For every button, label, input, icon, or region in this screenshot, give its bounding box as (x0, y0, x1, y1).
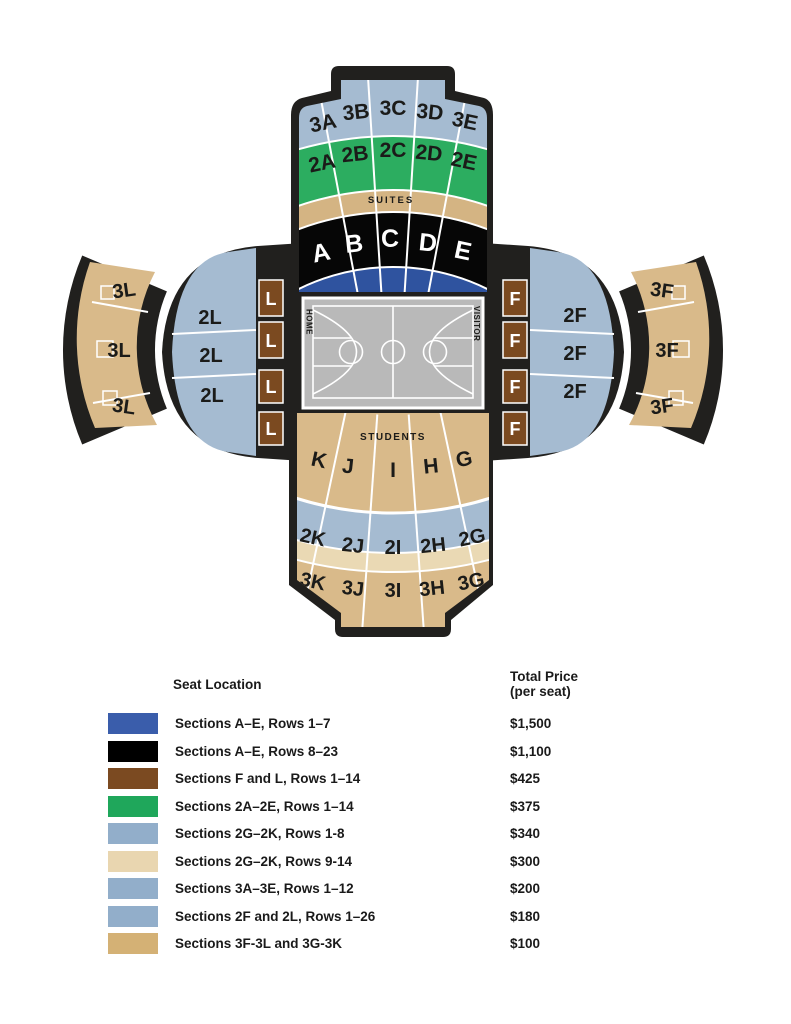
section-2f-label-2: 2F (563, 343, 586, 365)
section-f-label-1: F (510, 289, 521, 309)
section-d-label: D (418, 228, 439, 258)
legend-row: Sections 2G–2K, Rows 9-14 $300 (0, 848, 791, 875)
total-price-header: Total Price (per seat) (510, 669, 578, 699)
legend-swatch (108, 823, 158, 844)
arena-map: 3A 3B 3C 3D 3E 2A 2B 2C 2D 2E SUITES A B… (0, 0, 791, 660)
legend-row-label: Sections 2G–2K, Rows 9-14 (175, 854, 352, 869)
legend-swatch (108, 796, 158, 817)
legend-row-label: Sections 2A–2E, Rows 1–14 (175, 799, 354, 814)
section-3c-label: 3C (380, 97, 407, 120)
section-3f-label-2: 3F (655, 340, 678, 362)
legend-swatch (108, 878, 158, 899)
section-b-label: B (344, 229, 365, 259)
legend-swatch (108, 933, 158, 954)
right-wing: 2F 2F 2F F F F F 3F 3F 3F (503, 248, 709, 456)
legend-row-price: $100 (510, 936, 540, 951)
section-l-label-3: L (266, 377, 277, 397)
legend-row: Sections 2F and 2L, Rows 1–26 $180 (0, 903, 791, 930)
section-2i-label: 2I (385, 537, 402, 559)
section-2f-label-3: 2F (563, 381, 586, 403)
seat-location-header: Seat Location (173, 677, 262, 692)
section-2b-label: 2B (340, 142, 369, 168)
section-3h-label: 3H (418, 577, 446, 602)
visitor-label: VISITOR (472, 306, 481, 341)
legend-swatch (108, 741, 158, 762)
section-2l-label-3: 2L (200, 385, 223, 407)
section-i-label: I (390, 459, 396, 482)
legend-row: Sections 2G–2K, Rows 1-8 $340 (0, 820, 791, 847)
legend-swatch (108, 906, 158, 927)
court: HOME VISITOR (303, 298, 483, 408)
section-3l-label-2: 3L (107, 340, 130, 362)
section-l-label-1: L (266, 289, 277, 309)
legend-row-label: Sections 2F and 2L, Rows 1–26 (175, 909, 375, 924)
section-3l-label-1: 3L (111, 278, 137, 303)
legend-row-price: $375 (510, 799, 540, 814)
legend-row-price: $1,500 (510, 716, 551, 731)
seating-chart-page: 3A 3B 3C 3D 3E 2A 2B 2C 2D 2E SUITES A B… (0, 0, 791, 1024)
section-3l-label-3: 3L (111, 394, 137, 419)
section-l-label-4: L (266, 419, 277, 439)
section-2f-label-1: 2F (563, 305, 586, 327)
legend-swatch (108, 713, 158, 734)
section-3f-label-1: 3F (649, 278, 675, 303)
section-h-label: H (422, 454, 439, 478)
legend-row-price: $425 (510, 771, 540, 786)
students-label: STUDENTS (360, 432, 426, 443)
legend-row-price: $1,100 (510, 744, 551, 759)
legend-swatch (108, 768, 158, 789)
legend-row: Sections F and L, Rows 1–14 $425 (0, 765, 791, 792)
section-2l-label-2: 2L (199, 345, 222, 367)
section-3f-label-3: 3F (649, 394, 675, 419)
left-wing: 2L 2L 2L L L L L 3L 3L 3L (77, 248, 283, 456)
legend-row-label: Sections 3F-3L and 3G-3K (175, 936, 342, 951)
legend-row-label: Sections F and L, Rows 1–14 (175, 771, 360, 786)
legend-row: Sections 2A–2E, Rows 1–14 $375 (0, 793, 791, 820)
total-price-header-line2: (per seat) (510, 684, 578, 699)
section-2h-label: 2H (419, 534, 447, 559)
section-2j-label: 2J (341, 534, 365, 558)
section-2c-label: 2C (380, 139, 407, 162)
legend-row: Sections A–E, Rows 8–23 $1,100 (0, 738, 791, 765)
section-3d-label: 3D (415, 100, 444, 126)
legend-row-label: Sections A–E, Rows 8–23 (175, 744, 338, 759)
section-c-label: C (381, 225, 399, 253)
section-3b-label: 3B (341, 100, 370, 126)
suites-label: SUITES (368, 195, 414, 206)
legend-row: Sections 3F-3L and 3G-3K $100 (0, 930, 791, 957)
section-f-label-4: F (510, 419, 521, 439)
legend-row-price: $200 (510, 881, 540, 896)
legend-row: Sections 3A–3E, Rows 1–12 $200 (0, 875, 791, 902)
section-f-label-3: F (510, 377, 521, 397)
section-3i-label: 3I (385, 580, 402, 602)
section-l-label-2: L (266, 331, 277, 351)
legend-row-label: Sections 3A–3E, Rows 1–12 (175, 881, 354, 896)
legend-row: Sections A–E, Rows 1–7 $1,500 (0, 710, 791, 737)
section-2l-label-1: 2L (198, 307, 221, 329)
legend-swatch (108, 851, 158, 872)
section-f-label-2: F (510, 331, 521, 351)
legend-row-label: Sections 2G–2K, Rows 1-8 (175, 826, 345, 841)
legend-row-price: $340 (510, 826, 540, 841)
section-j-label: J (341, 454, 355, 478)
section-3j-label: 3J (341, 577, 365, 601)
legend-row-price: $180 (510, 909, 540, 924)
home-label: HOME (305, 309, 314, 335)
legend-row-label: Sections A–E, Rows 1–7 (175, 716, 331, 731)
section-2d-label: 2D (414, 141, 443, 167)
legend-row-price: $300 (510, 854, 540, 869)
total-price-header-line1: Total Price (510, 669, 578, 684)
